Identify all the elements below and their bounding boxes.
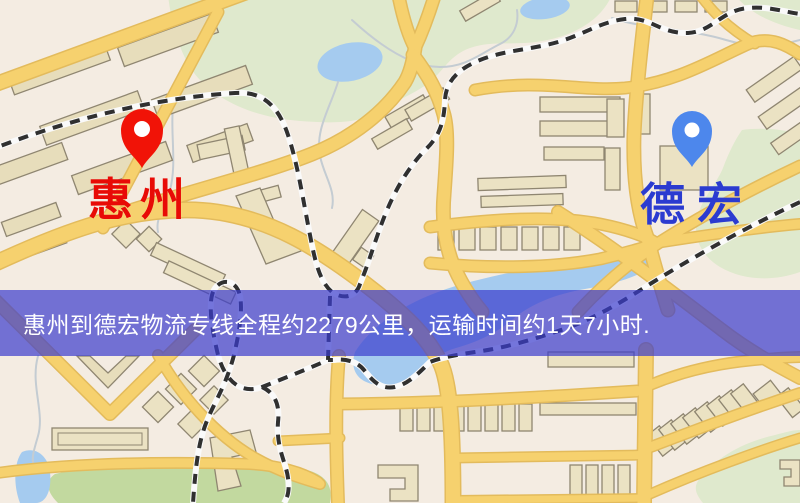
- logistics-route-map: 惠州 德宏 惠州到德宏物流专线全程约2279公里，运输时间约1天7小时.: [0, 0, 800, 503]
- destination-label: 德宏: [640, 182, 754, 227]
- map-canvas[interactable]: [0, 0, 800, 503]
- origin-label: 惠州: [88, 177, 192, 222]
- route-info-banner: 惠州到德宏物流专线全程约2279公里，运输时间约1天7小时.: [0, 290, 800, 356]
- route-info-text: 惠州到德宏物流专线全程约2279公里，运输时间约1天7小时.: [23, 306, 650, 340]
